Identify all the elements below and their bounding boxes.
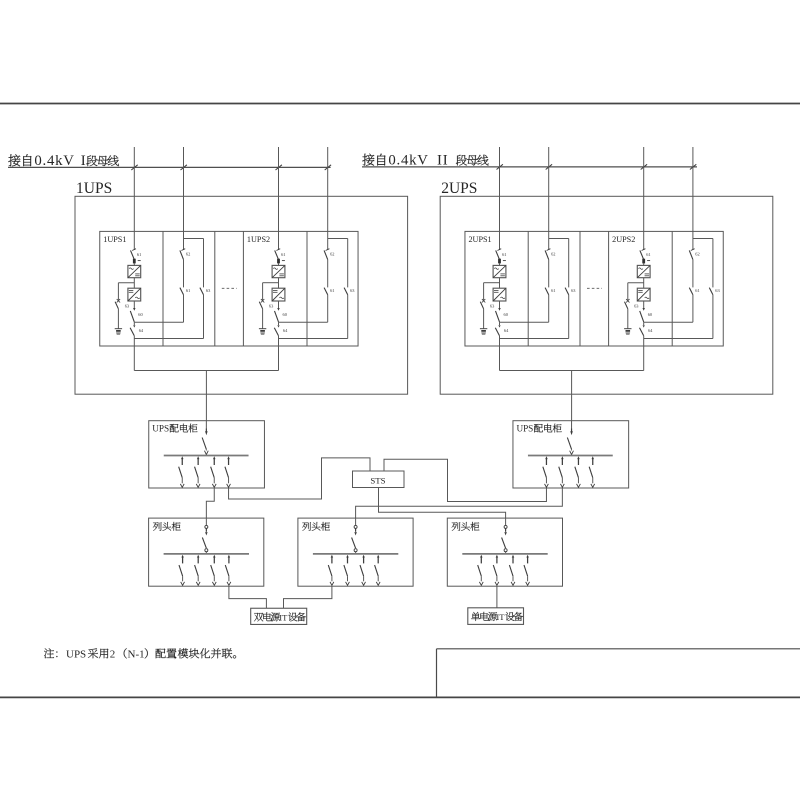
svg-text:63: 63 bbox=[206, 288, 211, 293]
svg-text:,: , bbox=[174, 649, 177, 661]
svg-text:II: II bbox=[437, 153, 448, 169]
svg-text:63: 63 bbox=[269, 304, 274, 309]
svg-text:1UPS2: 1UPS2 bbox=[247, 235, 270, 244]
svg-text:60: 60 bbox=[138, 312, 143, 317]
svg-text:STS: STS bbox=[370, 476, 385, 486]
svg-text:62: 62 bbox=[330, 252, 334, 257]
svg-text:62: 62 bbox=[695, 252, 699, 257]
svg-text:62: 62 bbox=[186, 252, 190, 257]
svg-text:61: 61 bbox=[551, 288, 555, 293]
svg-text:2UPS1: 2UPS1 bbox=[468, 235, 491, 244]
svg-text:63: 63 bbox=[350, 288, 355, 293]
svg-text:UPS: UPS bbox=[516, 424, 533, 434]
svg-text:63: 63 bbox=[125, 304, 130, 309]
svg-text:IT: IT bbox=[279, 613, 288, 623]
svg-text:N-1: N-1 bbox=[128, 649, 145, 661]
svg-text:64: 64 bbox=[283, 328, 288, 333]
svg-text:0.4kV: 0.4kV bbox=[388, 153, 428, 169]
svg-text:61: 61 bbox=[695, 288, 699, 293]
svg-text:61: 61 bbox=[137, 252, 141, 257]
svg-text:2UPS: 2UPS bbox=[441, 180, 477, 197]
svg-text:64: 64 bbox=[648, 328, 653, 333]
svg-text:61: 61 bbox=[281, 252, 285, 257]
svg-text:1UPS1: 1UPS1 bbox=[103, 235, 126, 244]
svg-text:63: 63 bbox=[634, 304, 639, 309]
svg-text:2UPS2: 2UPS2 bbox=[612, 235, 635, 244]
svg-text:60: 60 bbox=[504, 312, 509, 317]
svg-text:64: 64 bbox=[139, 328, 144, 333]
svg-text:UPS: UPS bbox=[66, 649, 86, 661]
svg-text:UPS: UPS bbox=[152, 424, 169, 434]
svg-text:63: 63 bbox=[715, 288, 720, 293]
svg-text:61: 61 bbox=[502, 252, 506, 257]
svg-text:2: 2 bbox=[110, 649, 116, 661]
svg-text:61: 61 bbox=[330, 288, 334, 293]
svg-text:62: 62 bbox=[551, 252, 555, 257]
svg-text:60: 60 bbox=[648, 312, 653, 317]
svg-text:64: 64 bbox=[504, 328, 509, 333]
svg-text:63: 63 bbox=[490, 304, 495, 309]
svg-text:IT: IT bbox=[496, 612, 505, 622]
svg-text:61: 61 bbox=[646, 252, 650, 257]
svg-text:63: 63 bbox=[571, 288, 576, 293]
svg-text:61: 61 bbox=[186, 288, 190, 293]
svg-text:1UPS: 1UPS bbox=[76, 180, 112, 197]
svg-text:60: 60 bbox=[283, 312, 288, 317]
